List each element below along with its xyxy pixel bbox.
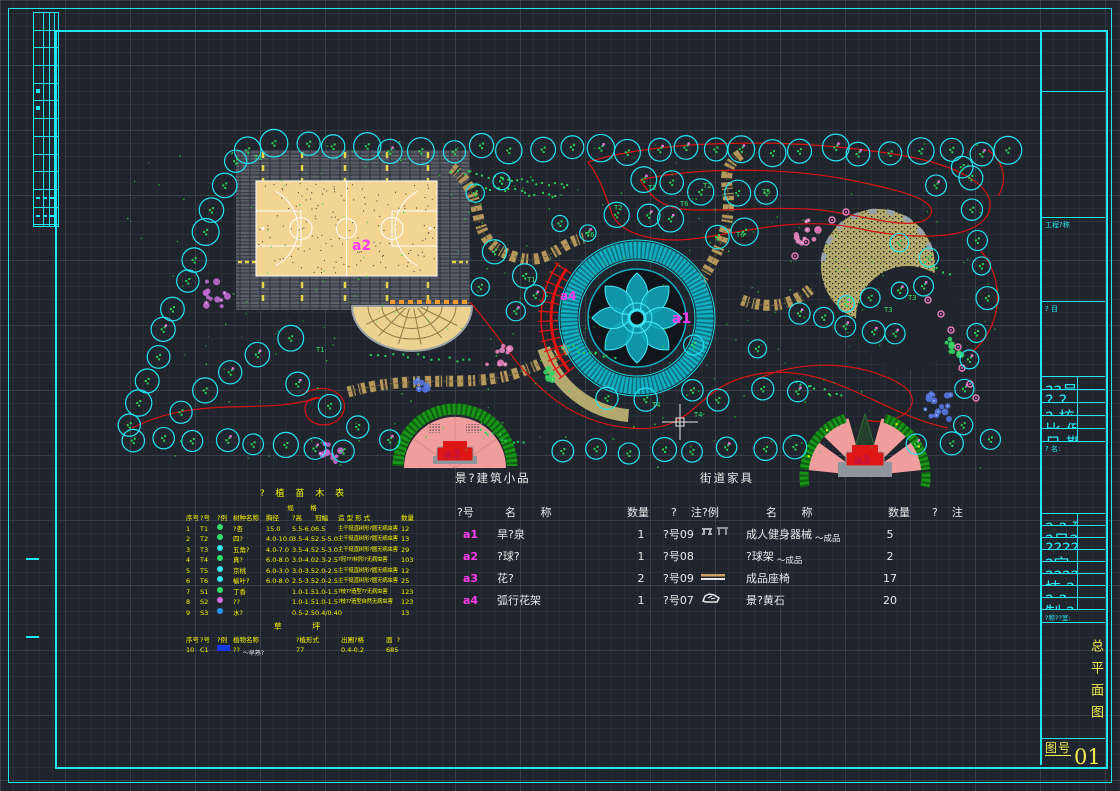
plant-qty: 13 [401, 608, 418, 619]
table-row: ?球架～成品2 [700, 546, 984, 568]
feature-qty: 1 [619, 546, 663, 568]
svg-text:T2: T2 [614, 204, 622, 212]
signature-row-6: ? ? 人 [1042, 586, 1105, 598]
lawn-symbol-icon [217, 645, 233, 656]
plant-name: 水? [233, 608, 266, 619]
lawn-name: ??～早熟? [233, 645, 296, 656]
table-row: 1T1?杏15.05.5-6.06.5主干挺直树形?圆无病虫害12 [186, 524, 422, 535]
column-header: 序号 [186, 635, 200, 646]
plant-height: 0.5-2.5 [292, 608, 315, 619]
plant-symbol-icon [217, 576, 223, 582]
signature-row-3-label: ?定 人 [1042, 550, 1078, 561]
table-row: 景?黄石20 [700, 590, 984, 612]
plant-seq: 9 [186, 608, 200, 619]
plant-symbol-icon [217, 608, 223, 614]
plant-symbol-icon [217, 608, 233, 619]
feature-name: ?球? [497, 546, 619, 568]
svg-text:T2: T2 [703, 182, 711, 190]
table-row: 7S1丁香1.0-1.51.0-1.5?枝??造型??无病虫害123 [186, 587, 422, 598]
plant-table-header: 序号?号?例树种名称胸径?高冠幅造 型 形 式数量 [186, 513, 422, 524]
column-header: ?号 [200, 635, 217, 646]
project-name-cell-label: 工程?称 [1042, 218, 1105, 230]
bench-icon [700, 568, 746, 590]
rock-icon [700, 590, 746, 612]
feature-qty: 2 [619, 568, 663, 590]
drawing-title-cell: 总平面图 [1042, 635, 1105, 739]
plant-form: ?枝??造型自然无病虫害 [338, 597, 401, 608]
signature-row-2: ?????? [1042, 538, 1105, 550]
plant-tag: S2 [200, 597, 217, 608]
plant-symbol-icon [217, 566, 233, 577]
plant-crown: 2.0-2.5 [315, 566, 338, 577]
furniture-name: 成人健身器械～成品 [746, 524, 868, 546]
drawing-sheet: T2T6T2T6T2T5T5T3T3T1T1T4T4T1T6a2a1a4a3a3… [0, 0, 1120, 791]
column-header: 出圃?格 [341, 635, 386, 646]
svg-text:T1: T1 [527, 276, 535, 284]
plant-qty: 25 [401, 576, 418, 587]
plant-symbol-icon [217, 534, 223, 540]
info-row-3-label: 比 例 [1042, 416, 1078, 428]
plant-crown: 0.4/0.40 [315, 608, 338, 619]
plant-qty: 123 [401, 587, 418, 598]
plant-seq: 1 [186, 524, 200, 535]
table-row: a2?球?1?号08 [455, 546, 731, 568]
signature-row-7-label: 制 ? 人 [1042, 598, 1078, 609]
table-row: 9S3水?0.5-2.50.4/0.4013 [186, 608, 422, 619]
plant-schedule-table: ? 植 苗 木 表 规 格 序号?号?例树种名称胸径?高冠幅造 型 形 式数量 … [186, 489, 422, 656]
column-header: 造 型 形 式 [338, 513, 401, 524]
plant-symbol-icon [217, 576, 233, 587]
header-row: 序号?号?例树种名称胸径?高冠幅造 型 形 式数量 [186, 513, 422, 524]
header-row: ?例名 称数量? 注 [700, 502, 984, 524]
plant-crown: 1.0-1.5 [315, 587, 338, 598]
sheet-number-cell: 图号01 [1042, 739, 1105, 773]
plant-seq: 5 [186, 566, 200, 577]
table-row: 3T3五角?4.0-7.03.5-4.52.5-3.0主干挺直树形?圆无病虫害2… [186, 545, 422, 556]
plant-symbol-icon [217, 587, 223, 593]
plant-seq: 7 [186, 587, 200, 598]
plant-symbol-icon [217, 545, 233, 556]
plant-tag: T4 [200, 555, 217, 566]
plant-dbh: 6.0-8.0 [266, 576, 292, 587]
feature-id: a2 [455, 546, 497, 568]
table-row: 成品座椅17 [700, 568, 984, 590]
column-header: 序号 [186, 513, 200, 524]
signature-row-6-label: ? ? 人 [1042, 586, 1078, 597]
spec-group-row: 规 格 [186, 503, 422, 514]
header-row: ?号名 称数量? 注 [455, 502, 731, 524]
plant-tag: S3 [200, 608, 217, 619]
title-block: 工程?称? 目??号? ?? 核比 例日 期? 名:? ? 班?日??人????… [1040, 30, 1105, 765]
plant-dbh: 6.0-3.0 [266, 566, 292, 577]
feature-table-rows: a1旱?泉1?号09a2?球?1?号08a3花?2?号09a4弧行花架1?号07 [455, 524, 731, 612]
column-header: 面 ? [386, 635, 419, 646]
plant-form: 主干挺直树形?圆无病虫害 [338, 545, 401, 556]
project-name-cell: 工程?称 [1042, 218, 1105, 302]
furniture-qty: 17 [868, 568, 912, 590]
feature-table-title: 景?建筑小品 [455, 467, 731, 489]
item-cell-label: ? 目 [1042, 302, 1105, 314]
feature-id: a3 [455, 568, 497, 590]
feature-name: 旱?泉 [497, 524, 619, 546]
table-row: 10C1??～早熟?770.4-0.2685 [186, 645, 422, 656]
plant-symbol-icon [217, 566, 223, 572]
svg-text:T6: T6 [680, 200, 688, 208]
drawing-title: 总平面图 [1042, 635, 1105, 730]
plant-tag: T5 [200, 566, 217, 577]
plant-form: 主干挺直树形?圆无病虫害 [338, 576, 401, 587]
signature-row-1: ?日??人 [1042, 526, 1105, 538]
info-row-4-label: 日 期 [1042, 429, 1078, 441]
item-cell: ? 目 [1042, 302, 1105, 377]
plant-dbh: 4.0-7.0 [266, 545, 292, 556]
plant-crown: 6.5 [315, 524, 338, 535]
plant-height: 3.5-4.5 [292, 545, 315, 556]
table-row: a3花?2?号09 [455, 568, 731, 590]
plant-qty: 13 [401, 534, 418, 545]
plant-dbh: 15.0 [266, 524, 292, 535]
column-header: ?例 [217, 513, 233, 524]
svg-text:T6: T6 [736, 231, 744, 239]
svg-text:T5: T5 [762, 188, 770, 196]
lawn-area: 685 [386, 645, 419, 656]
plant-name: 四? [233, 534, 266, 545]
plant-tag: T1 [200, 524, 217, 535]
table-row: 5T5京桃6.0-3.03.0-3.52.0-2.5主干挺直树形?圆无病虫害12 [186, 566, 422, 577]
svg-text:T1: T1 [254, 154, 262, 162]
plant-name: 丁香 [233, 587, 266, 598]
plant-qty: 29 [401, 545, 418, 556]
table-row: 6T6榆叶?6.0-8.02.5-3.52.0-2.5主干挺直树形?圆无病虫害2… [186, 576, 422, 587]
svg-text:T4: T4 [694, 411, 702, 419]
info-row-2-label: ? 核 [1042, 403, 1078, 415]
info-row-0: ??号 [1042, 377, 1105, 390]
signature-row-5-label: 技 ? 人 [1042, 574, 1078, 585]
lawn-plant-form: 77 [296, 645, 341, 656]
signature-row-5: 技 ? 人 [1042, 574, 1105, 586]
svg-text:T6: T6 [586, 231, 594, 239]
svg-text:a2: a2 [352, 238, 371, 254]
lawn-section-title: 草 坪 [186, 622, 422, 633]
column-header: ?例 [217, 635, 233, 646]
spec-group-label: 规 格 [266, 503, 338, 514]
plant-symbol-icon [217, 524, 223, 530]
signature-row-0-label: ? ? 班 [1042, 514, 1078, 525]
signature-row-3: ?定 人 [1042, 550, 1105, 562]
column-header: 冠幅 [315, 513, 338, 524]
lawn-seq: 10 [186, 645, 200, 656]
plant-height: 1.0-1.5 [292, 597, 315, 608]
info-row-2: ? 核 [1042, 403, 1105, 416]
studio-cell: ?称??室: [1042, 610, 1105, 623]
furniture-qty: 5 [868, 524, 912, 546]
plant-name: 真? [233, 555, 266, 566]
landscape-features-table: 景?建筑小品 ?号名 称数量? 注 a1旱?泉1?号09a2?球?1?号08a3… [455, 467, 731, 612]
plant-name: 榆叶? [233, 576, 266, 587]
column-header: ?号 [455, 502, 491, 524]
plant-crown: 2.0-2.5 [315, 576, 338, 587]
lawn-symbol-icon [217, 645, 230, 651]
plant-name: ?杏 [233, 524, 266, 535]
lawn-tag: C1 [200, 645, 217, 656]
drawing-name-cell: ? 名: [1042, 442, 1105, 514]
plant-name: ?? [233, 597, 266, 608]
sheet-number: 01 [1074, 746, 1101, 768]
plant-height: 1.0-1.5 [292, 587, 315, 598]
column-header: 数量 [627, 502, 671, 524]
plant-tag: T6 [200, 576, 217, 587]
plant-crown: 2.5-5.0 [315, 534, 338, 545]
title-block-cell [1042, 92, 1105, 218]
plant-qty: 103 [401, 555, 418, 566]
studio-cell-label: ?称??室: [1042, 610, 1105, 622]
plant-symbol-icon [217, 597, 223, 603]
furniture-table-header: ?例名 称数量? 注 [700, 502, 984, 524]
column-header: 名 称 [748, 502, 888, 524]
table-row: 成人健身器械～成品5 [700, 524, 984, 546]
furniture-name: ?球架～成品 [746, 546, 868, 568]
plant-height: 2.5-3.5 [292, 576, 315, 587]
feature-name: 花? [497, 568, 619, 590]
signature-row-1-label: ?日??人 [1042, 526, 1078, 537]
plant-seq: 4 [186, 555, 200, 566]
lawn-spec: 0.4-0.2 [341, 645, 386, 656]
plant-form: ?枝??造型??无病虫害 [338, 587, 401, 598]
plant-form: ?冠???树形?无病虫害 [338, 555, 401, 566]
table-row: 4T4真?6.0-8.03.0-4.02.3-2.5?冠???树形?无病虫害10… [186, 555, 422, 566]
column-header: 数量 [888, 502, 932, 524]
plant-height: 3.5-4.5 [292, 534, 315, 545]
info-row-0-label: ??号 [1042, 377, 1078, 389]
sheet-number-label: 图号 [1045, 741, 1071, 756]
furniture-table-title: 街道家具 [700, 467, 984, 489]
plant-height: 3.0-3.5 [292, 566, 315, 577]
svg-text:a4: a4 [560, 289, 576, 303]
plant-symbol-icon [217, 545, 223, 551]
plant-tag: T3 [200, 545, 217, 556]
plant-qty: 123 [401, 597, 418, 608]
svg-text:a3: a3 [444, 447, 460, 461]
plant-name: 京桃 [233, 566, 266, 577]
column-header: ? 注 [932, 502, 984, 524]
info-row-1-label: ? ? [1042, 390, 1078, 402]
product-annotation: ～成品 [777, 550, 803, 572]
column-header: 胸径 [266, 513, 292, 524]
furniture-qty: 20 [868, 590, 912, 612]
plant-seq: 8 [186, 597, 200, 608]
svg-text:T3: T3 [908, 294, 916, 302]
svg-text:T5: T5 [845, 296, 853, 304]
signature-row-4-label: ????人 [1042, 562, 1078, 573]
drawing-canvas[interactable]: T2T6T2T6T2T5T5T3T3T1T1T4T4T1T6a2a1a4a3a3 [0, 0, 1120, 791]
plant-form: 主干挺直树形?圆无病虫害 [338, 534, 401, 545]
feature-qty: 1 [619, 524, 663, 546]
plant-tag: S1 [200, 587, 217, 598]
plant-form: 主干挺直树形?圆无病虫害 [338, 524, 401, 535]
column-header: 名 称 [491, 502, 627, 524]
svg-text:a3: a3 [854, 453, 870, 467]
signature-row-7: 制 ? 人 [1042, 598, 1105, 610]
furniture-qty: 2 [868, 546, 912, 568]
product-annotation: ～成品 [815, 528, 841, 550]
fitness-equipment-icon [700, 524, 746, 546]
drawing-name-cell-label: ? 名: [1042, 442, 1105, 454]
plant-table-spec-group: 规 格 [186, 503, 422, 514]
plant-symbol-icon [217, 534, 233, 545]
plant-symbol-icon [217, 587, 233, 598]
column-header: 植物名称 [233, 635, 296, 646]
svg-text:T1: T1 [316, 346, 324, 354]
plant-dbh: 6.0-8.0 [266, 555, 292, 566]
plant-seq: 2 [186, 534, 200, 545]
table-row: a1旱?泉1?号09 [455, 524, 731, 546]
plant-seq: 3 [186, 545, 200, 556]
lawn-table-rows: 10C1??～早熟?770.4-0.2685 [186, 645, 422, 656]
furniture-table-rows: 成人健身器械～成品5?球架～成品2成品座椅17景?黄石20 [700, 524, 984, 612]
signature-row-0: ? ? 班 [1042, 514, 1105, 526]
plant-qty: 12 [401, 524, 418, 535]
table-row: 2T2四?4.0-10.03.5-4.52.5-5.0主干挺直树形?圆无病虫害1… [186, 534, 422, 545]
plant-symbol-icon [217, 524, 233, 535]
feature-id: a4 [455, 590, 497, 612]
plant-qty: 12 [401, 566, 418, 577]
info-row-1: ? ? [1042, 390, 1105, 403]
table-row: a4弧行花架1?号07 [455, 590, 731, 612]
column-header: ?例 [700, 502, 748, 524]
plant-height: 5.5-6.0 [292, 524, 315, 535]
feature-table-header: ?号名 称数量? 注 [455, 502, 731, 524]
plant-table-rows: 1T1?杏15.05.5-6.06.5主干挺直树形?圆无病虫害122T2四?4.… [186, 524, 422, 619]
plant-form: 主干挺直树形?圆无病虫害 [338, 566, 401, 577]
column-header: 树种名称 [233, 513, 266, 524]
street-furniture-table: 街道家具 ?例名 称数量? 注 成人健身器械～成品5?球架～成品2成品座椅17景… [700, 467, 984, 612]
table-row: 8S2??1.0-1.51.0-1.5?枝??造型自然无病虫害123 [186, 597, 422, 608]
plant-height: 3.0-4.0 [292, 555, 315, 566]
signature-row-4: ????人 [1042, 562, 1105, 574]
plant-crown: 1.0-1.5 [315, 597, 338, 608]
feature-qty: 1 [619, 590, 663, 612]
column-header: 数量 [401, 513, 418, 524]
plant-table-title: ? 植 苗 木 表 [186, 489, 422, 500]
svg-text:T3: T3 [884, 306, 892, 314]
signature-row-2-label: ?????? [1042, 538, 1078, 549]
column-header: ?号 [200, 513, 217, 524]
plant-seq: 6 [186, 576, 200, 587]
feature-id: a1 [455, 524, 497, 546]
svg-text:T4: T4 [652, 401, 660, 409]
plant-symbol-icon [217, 555, 223, 561]
svg-text:T2: T2 [648, 184, 656, 192]
plant-symbol-icon [217, 555, 233, 566]
info-row-4: 日 期 [1042, 429, 1105, 442]
plant-name: 五角? [233, 545, 266, 556]
plant-tag: T2 [200, 534, 217, 545]
plant-crown: 2.5-3.0 [315, 545, 338, 556]
title-block-cell [1042, 30, 1105, 92]
column-header: ?植形式 [296, 635, 341, 646]
lawn-table-header: 序号?号?例植物名称?植形式出圃?格面 ? [186, 635, 422, 646]
plant-dbh: 4.0-10.0 [266, 534, 292, 545]
furniture-name: 成品座椅 [746, 568, 868, 590]
info-row-3: 比 例 [1042, 416, 1105, 429]
header-row: 序号?号?例植物名称?植形式出圃?格面 ? [186, 635, 422, 646]
feature-name: 弧行花架 [497, 590, 619, 612]
plant-symbol-icon [217, 597, 233, 608]
lawn-annotation: ～早熟? [243, 649, 264, 660]
svg-text:a1: a1 [672, 311, 691, 327]
furniture-name: 景?黄石 [746, 590, 868, 612]
plant-crown: 2.3-2.5 [315, 555, 338, 566]
column-header: ?高 [292, 513, 315, 524]
